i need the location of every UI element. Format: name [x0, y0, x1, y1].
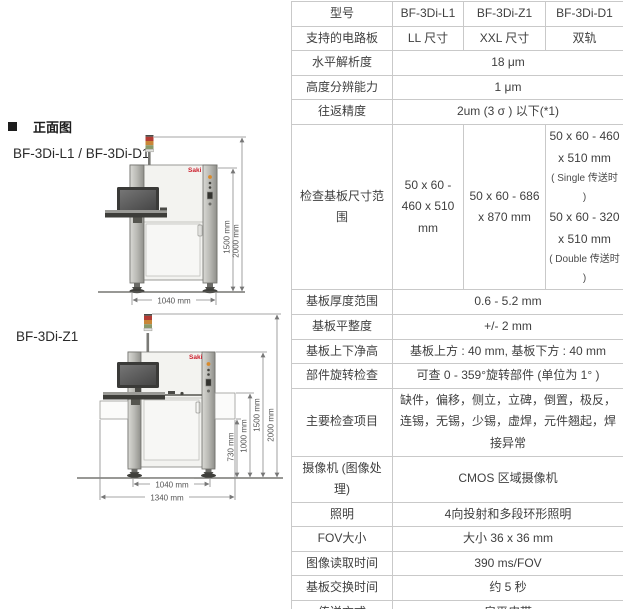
- machine2-left-conveyor-extension: [100, 401, 128, 419]
- value-line: 50 x 60 - 460 x 510 mm: [549, 126, 620, 169]
- machine2-front-view-diagram: Saki: [55, 308, 290, 508]
- table-row: 摄像机 (图像处理)CMOS 区域摄像机: [292, 456, 623, 502]
- table-row: 基板厚度范围0.6 - 5.2 mm: [292, 290, 623, 315]
- spec-table-container: 型号BF-3Di-L1BF-3Di-Z1BF-3Di-D1支持的电路板LL 尺寸…: [291, 1, 623, 609]
- value-cell: 大小 36 x 36 mm: [393, 527, 623, 552]
- machine2-brand-logo: Saki: [189, 354, 203, 361]
- row-label-cell: 部件旋转检查: [292, 364, 393, 389]
- signal-tower-icon: [146, 135, 154, 165]
- signal-tower-icon: [144, 314, 152, 352]
- machine2-dim-2000: 2000 mm: [267, 408, 276, 442]
- row-label-cell: 图像读取时间: [292, 551, 393, 576]
- row-label-cell: 基板上下净高: [292, 339, 393, 364]
- machine2-right-conveyor-extension: [215, 393, 235, 419]
- value-cell: 50 x 60 - 686 x 870 mm: [464, 124, 546, 289]
- spec-table-body: 型号BF-3Di-L1BF-3Di-Z1BF-3Di-D1支持的电路板LL 尺寸…: [292, 2, 623, 609]
- row-label-cell: 往返精度: [292, 100, 393, 125]
- value-cell: BF-3Di-Z1: [464, 2, 546, 27]
- value-cell: 50 x 60 - 460 x 510 mm( Single 传送时 )50 x…: [546, 124, 623, 289]
- table-row: 照明4向投射和多段环形照明: [292, 502, 623, 527]
- row-label-cell: 基板交换时间: [292, 576, 393, 601]
- row-label-cell: 传送方式: [292, 601, 393, 609]
- value-cell: +/- 2 mm: [393, 314, 623, 339]
- machine2-dim-1500: 1500 mm: [253, 398, 262, 432]
- table-row: 部件旋转检查可查 0 - 359°旋转部件 (单位为 1° ): [292, 364, 623, 389]
- value-cell: CMOS 区域摄像机: [393, 456, 623, 502]
- value-cell: 4向投射和多段环形照明: [393, 502, 623, 527]
- value-cell: BF-3Di-L1: [393, 2, 464, 27]
- table-row: 基板交换时间约 5 秒: [292, 576, 623, 601]
- spec-table: 型号BF-3Di-L1BF-3Di-Z1BF-3Di-D1支持的电路板LL 尺寸…: [291, 1, 623, 609]
- table-row: 往返精度2um (3 σ ) 以下(*1): [292, 100, 623, 125]
- row-label-cell: 基板平整度: [292, 314, 393, 339]
- table-row: 主要检查项目缺件，偏移，侧立，立碑，倒置，极反，连锡，无锡，少锡，虚焊，元件翘起…: [292, 388, 623, 456]
- table-row: 图像读取时间390 ms/FOV: [292, 551, 623, 576]
- row-label-cell: 主要检查项目: [292, 388, 393, 456]
- machine1-brand-logo: Saki: [188, 167, 202, 174]
- machine1-dim-1040: 1040 mm: [157, 297, 191, 306]
- value-cell: 双轨: [546, 26, 623, 51]
- value-cell: 390 ms/FOV: [393, 551, 623, 576]
- table-row: 支持的电路板LL 尺寸XXL 尺寸双轨: [292, 26, 623, 51]
- row-label-cell: FOV大小: [292, 527, 393, 552]
- value-cell: LL 尺寸: [393, 26, 464, 51]
- machine1-dim-2000: 2000 mm: [232, 224, 241, 258]
- value-cell: 缺件，偏移，侧立，立碑，倒置，极反，连锡，无锡，少锡，虚焊，元件翘起，焊接异常: [393, 388, 623, 456]
- diagram-panel: 正面图 BF-3Di-L1 / BF-3Di-D1: [0, 0, 291, 609]
- table-row: 高度分辨能力1 μm: [292, 75, 623, 100]
- value-cell: 约 5 秒: [393, 576, 623, 601]
- row-label-cell: 高度分辨能力: [292, 75, 393, 100]
- table-row: 水平解析度18 μm: [292, 51, 623, 76]
- row-label-cell: 支持的电路板: [292, 26, 393, 51]
- table-row: 检查基板尺寸范围50 x 60 - 460 x 510 mm50 x 60 - …: [292, 124, 623, 289]
- value-cell: 扁平皮带: [393, 601, 623, 609]
- table-row: 型号BF-3Di-L1BF-3Di-Z1BF-3Di-D1: [292, 2, 623, 27]
- machine2-dim-730: 730 mm: [227, 432, 236, 461]
- row-label-cell: 照明: [292, 502, 393, 527]
- machine2-dim-1040: 1040 mm: [155, 481, 189, 490]
- table-row: 基板平整度+/- 2 mm: [292, 314, 623, 339]
- value-cell: XXL 尺寸: [464, 26, 546, 51]
- value-note: ( Single 传送时 ): [549, 169, 620, 207]
- table-row: FOV大小大小 36 x 36 mm: [292, 527, 623, 552]
- value-cell: 1 μm: [393, 75, 623, 100]
- value-cell: 基板上方 : 40 mm, 基板下方 : 40 mm: [393, 339, 623, 364]
- value-cell: 50 x 60 - 460 x 510 mm: [393, 124, 464, 289]
- row-label-cell: 基板厚度范围: [292, 290, 393, 315]
- table-row: 基板上下净高基板上方 : 40 mm, 基板下方 : 40 mm: [292, 339, 623, 364]
- value-cell: BF-3Di-D1: [546, 2, 623, 27]
- value-cell: 18 μm: [393, 51, 623, 76]
- machine1-body: [130, 165, 218, 293]
- machine2-dim-1340: 1340 mm: [150, 494, 184, 503]
- spec-sheet-page: 正面图 BF-3Di-L1 / BF-3Di-D1: [0, 0, 623, 609]
- square-bullet-icon: [8, 122, 17, 131]
- table-row: 传送方式扁平皮带: [292, 601, 623, 609]
- value-cell: 可查 0 - 359°旋转部件 (单位为 1° ): [393, 364, 623, 389]
- row-label-cell: 摄像机 (图像处理): [292, 456, 393, 502]
- row-label-cell: 型号: [292, 2, 393, 27]
- value-line: 50 x 60 - 320 x 510 mm: [549, 207, 620, 250]
- section-header: 正面图: [8, 117, 72, 136]
- row-label-cell: 检查基板尺寸范围: [292, 124, 393, 289]
- section-title: 正面图: [33, 117, 72, 136]
- machine2-dim-1000: 1000 mm: [240, 419, 249, 453]
- machine1-front-view-diagram: Saki: [80, 125, 265, 313]
- value-cell: 2um (3 σ ) 以下(*1): [393, 100, 623, 125]
- value-note: ( Double 传送时 ): [549, 250, 620, 288]
- machine1-dim-1500: 1500 mm: [223, 220, 232, 254]
- value-cell: 0.6 - 5.2 mm: [393, 290, 623, 315]
- machine2-feet: [127, 469, 216, 478]
- row-label-cell: 水平解析度: [292, 51, 393, 76]
